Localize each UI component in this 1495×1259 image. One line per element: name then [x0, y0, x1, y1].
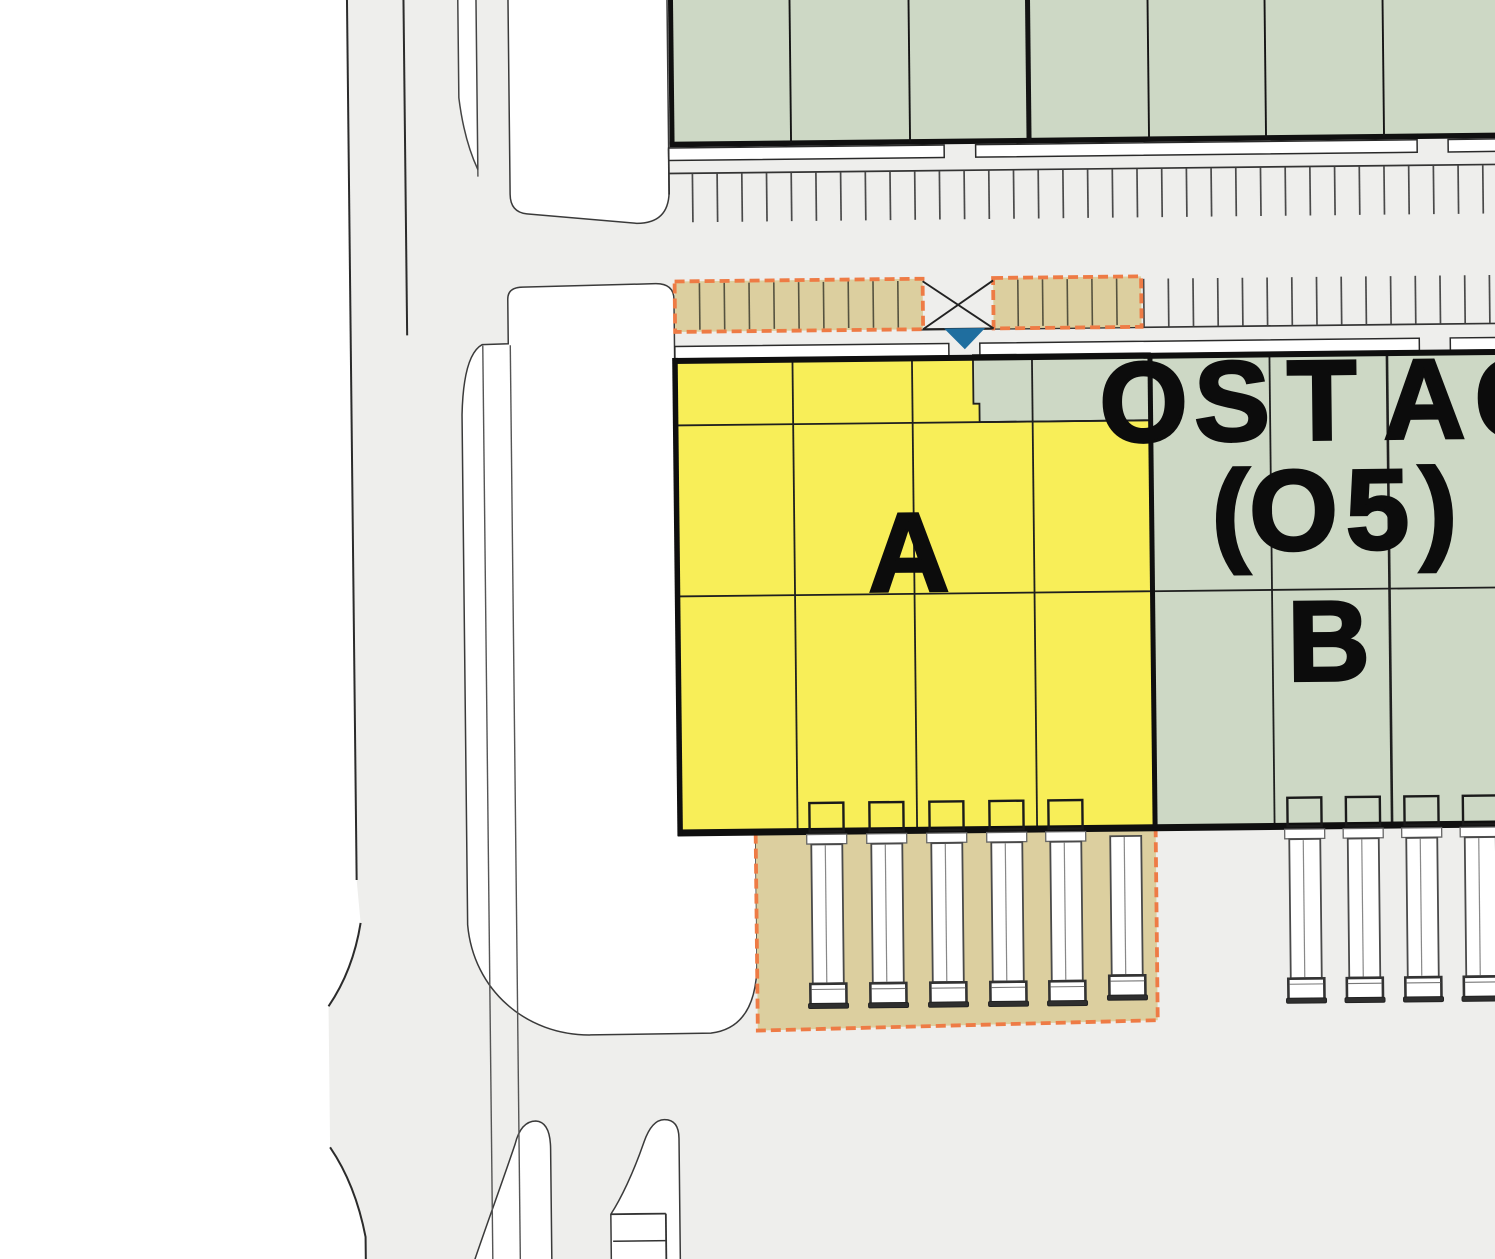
svg-text:A: A: [867, 489, 949, 615]
svg-text:(O5): (O5): [1211, 446, 1458, 576]
svg-text:B: B: [1287, 578, 1371, 706]
